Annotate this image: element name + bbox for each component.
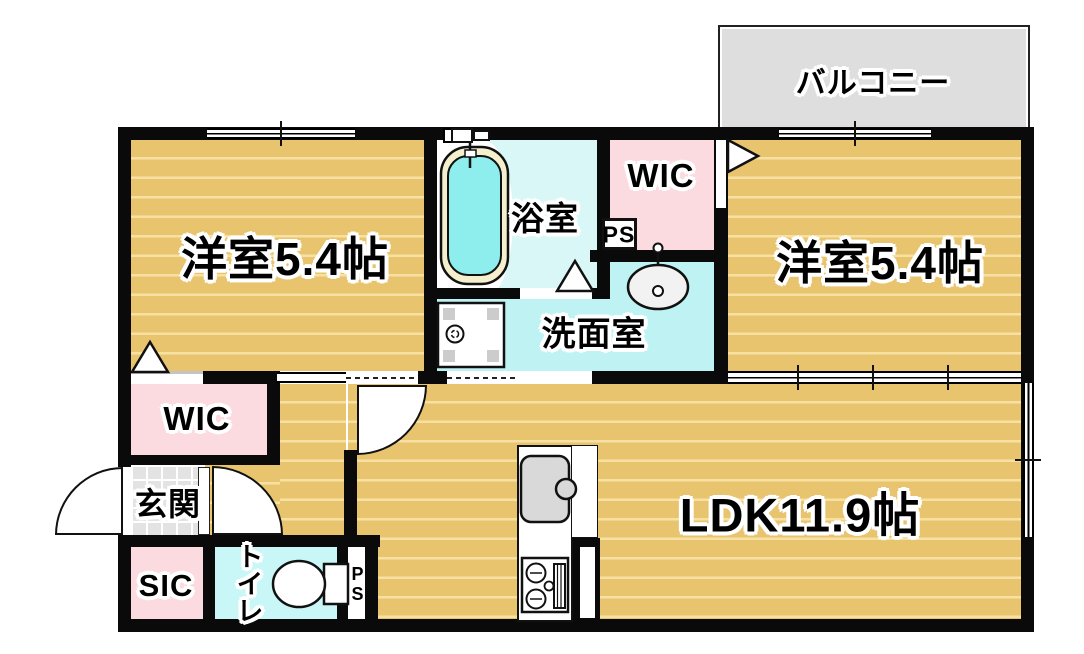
label-genkan: 玄関 [135,479,201,525]
label-ps-bottom: PS [347,564,368,604]
front-door-swing-arc [55,467,123,535]
hallway-floor [280,384,346,538]
label-balcony: バルコニー [796,58,950,102]
label-wic-left: WIC [163,400,230,438]
label-wic-right: WIC [627,157,694,195]
wall-mid-2 [418,371,447,384]
wall-outer-left [118,127,131,632]
wic-right-door-opening [716,140,726,208]
wall-mid-3 [592,371,728,384]
kitchen-counter [517,445,573,622]
label-toilet: トイレ [229,543,268,624]
label-bedroom-right: 洋室5.4帖 [776,227,984,293]
room-washroom-arm [610,262,716,298]
wic-left-door-opening [131,371,203,384]
partition-bedroom-right-ldk [728,371,1021,384]
wall-wicL-bottom [131,455,280,465]
bathtub-zone [437,140,513,293]
washroom-door-opening [519,372,592,383]
sliding-door-pocket-2 [447,372,519,383]
bathroom-door-opening [520,288,592,299]
wall-toilet-left [203,547,215,619]
label-ldk: LDK11.9帖 [680,477,920,546]
sliding-door-pocket-1 [346,372,418,383]
floorplan-canvas: 洋室5.4帖 洋室5.4帖 LDK11.9帖 バルコニー 浴室 洗面室 WIC … [0,0,1084,654]
kitchen-duct-slot [580,547,595,618]
label-sic: SIC [139,568,194,604]
wall-mid-1 [203,371,277,384]
wall-wic-bottom [590,250,728,262]
label-bedroom-left: 洋室5.4帖 [181,223,389,289]
bedroom-left-sliding-door [277,372,346,383]
window-ldk-right [1023,383,1034,537]
window-bathroom [443,128,467,143]
window-bedroom-right [779,128,931,139]
wall-wicL-right [267,371,280,465]
label-washroom: 洗面室 [542,307,647,356]
window-bedroom-left [207,128,355,139]
label-bathroom: 浴室 [511,192,579,240]
wall-outer-right [1021,127,1034,632]
wall-hall-ldk [344,450,357,540]
label-ps-top: PS [603,222,636,249]
wall-bedroomL-bath [424,140,437,371]
kitchen-counter-side [571,445,598,538]
